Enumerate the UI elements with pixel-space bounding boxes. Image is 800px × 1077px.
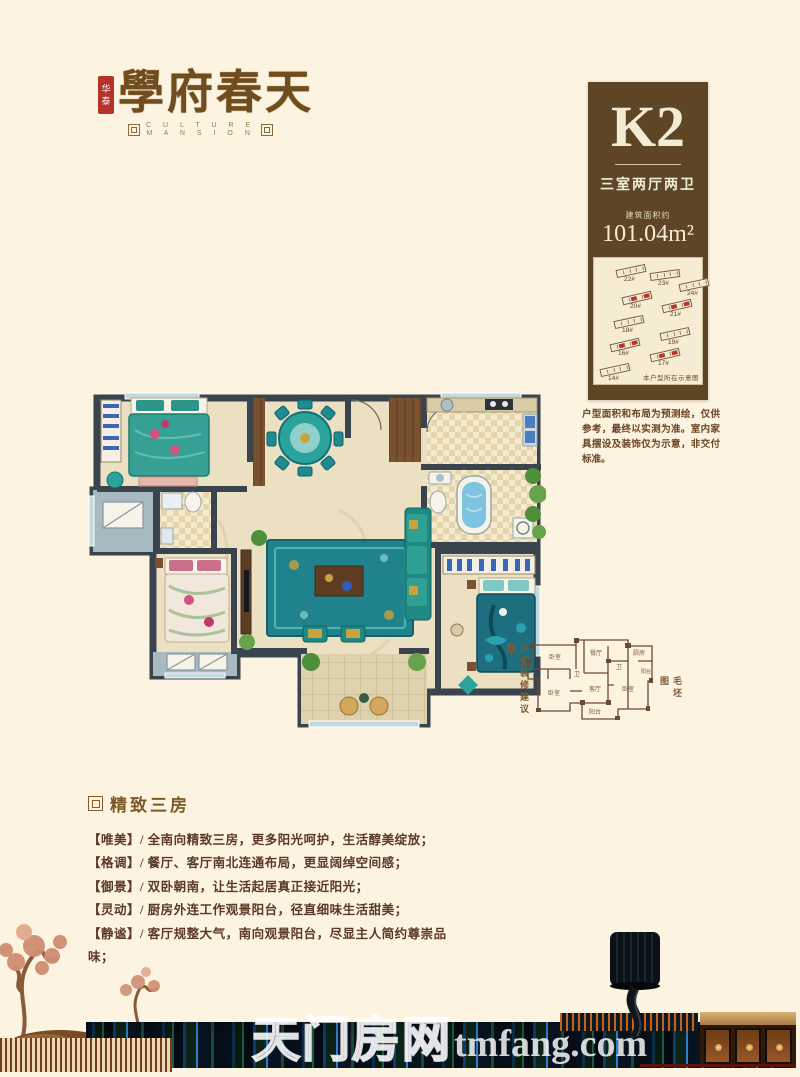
photo-window bbox=[765, 1028, 792, 1064]
room-label: 厨房 bbox=[633, 649, 645, 657]
site-map-building-label: 23# bbox=[658, 280, 669, 287]
feature-item: 【御景】/ 双卧朝南，让生活起居真正接近阳光； bbox=[88, 876, 448, 899]
bare-plan-label: 毛坯图 bbox=[658, 676, 684, 710]
unit-layout: 三室两厅两卫 bbox=[600, 174, 696, 194]
site-map-building-label: 20# bbox=[630, 303, 641, 310]
ornament-seal-left-icon bbox=[128, 124, 140, 136]
brand-subtitle: C U L T U R E M A N S I O N bbox=[146, 122, 255, 138]
brand-subtitle-line1: C U L T U R E bbox=[146, 122, 255, 129]
site-map-building-label: 22# bbox=[624, 276, 635, 283]
bare-plan: 卧室 餐厅 厨房 卫 卫 阳台 卧室 客厅 卧室 阳台 bbox=[522, 633, 658, 721]
room-label: 阳台 bbox=[589, 708, 601, 716]
photo-window bbox=[735, 1028, 762, 1064]
unit-card: K2 三室两厅两卫 建筑面积约 101.04m² 本户型所在示意图 22#23#… bbox=[588, 82, 708, 400]
room-label: 卫 bbox=[574, 671, 580, 678]
brand-seal-char-bottom: 泰 bbox=[98, 96, 114, 106]
site-map-building-label: 17# bbox=[658, 360, 669, 367]
room-label: 餐厅 bbox=[590, 649, 602, 657]
site-map-building-label: 14# bbox=[608, 375, 619, 382]
floor-plan-image bbox=[88, 390, 546, 732]
room-label: 卧室 bbox=[549, 653, 561, 661]
site-map-building-label: 24# bbox=[687, 290, 698, 297]
site-map-building-label: 16# bbox=[618, 350, 629, 357]
room-label: 卧室 bbox=[622, 685, 634, 693]
room-label: 卫 bbox=[616, 664, 622, 671]
site-map-building-label: 19# bbox=[668, 339, 679, 346]
unit-area-value: 101.04m² bbox=[602, 221, 694, 247]
lamp-illustration bbox=[604, 930, 666, 1058]
feature-item: 【唯美】/ 全南向精致三房，更多阳光呵护，生活醇美绽放； bbox=[88, 829, 448, 852]
site-map: 本户型所在示意图 22#23#24#20#21#18#19#16#17#14# bbox=[593, 257, 703, 385]
room-label: 卧室 bbox=[548, 689, 560, 697]
brand-logo: 华 泰 學府春天 C U L T U R E M A N S I O N bbox=[98, 68, 358, 138]
divider bbox=[615, 164, 681, 165]
brand-title: 學府春天 bbox=[118, 68, 314, 118]
unit-area-label: 建筑面积约 bbox=[626, 210, 671, 221]
ornament-seal-right-icon bbox=[261, 124, 273, 136]
site-map-building-label: 21# bbox=[670, 311, 681, 318]
brand-seal-char-top: 华 bbox=[98, 84, 114, 94]
disclaimer-text: 户型面积和布局为预测绘，仅供参考，最终以实测为准。室内家具摆设及装饰仅为示意，非… bbox=[582, 408, 720, 468]
fence-stripes bbox=[0, 1038, 172, 1072]
poster-page: { "page": {"background": "#fcf3e1"}, "br… bbox=[0, 0, 800, 1077]
feature-item: 【格调】/ 餐厅、客厅南北连通布局，更显阔绰空间感； bbox=[88, 852, 448, 875]
red-accent-line bbox=[640, 1064, 796, 1067]
unit-code: K2 bbox=[611, 96, 685, 158]
interior-photo bbox=[700, 1012, 796, 1066]
awning bbox=[700, 1012, 796, 1025]
seal-bullet-icon bbox=[88, 796, 103, 811]
room-label: 阳台 bbox=[641, 668, 651, 675]
room-label: 客厅 bbox=[589, 685, 601, 693]
feature-item: 【灵动】/ 厨房外连工作观景阳台，径直细味生活甜美； bbox=[88, 899, 448, 922]
site-map-caption: 本户型所在示意图 bbox=[643, 372, 699, 382]
features-heading: 精致三房 bbox=[110, 791, 190, 816]
brand-seal-icon: 华 泰 bbox=[98, 76, 114, 114]
photo-window bbox=[704, 1028, 731, 1064]
site-map-building-label: 18# bbox=[622, 327, 633, 334]
brand-subtitle-line2: M A N S I O N bbox=[146, 130, 255, 137]
